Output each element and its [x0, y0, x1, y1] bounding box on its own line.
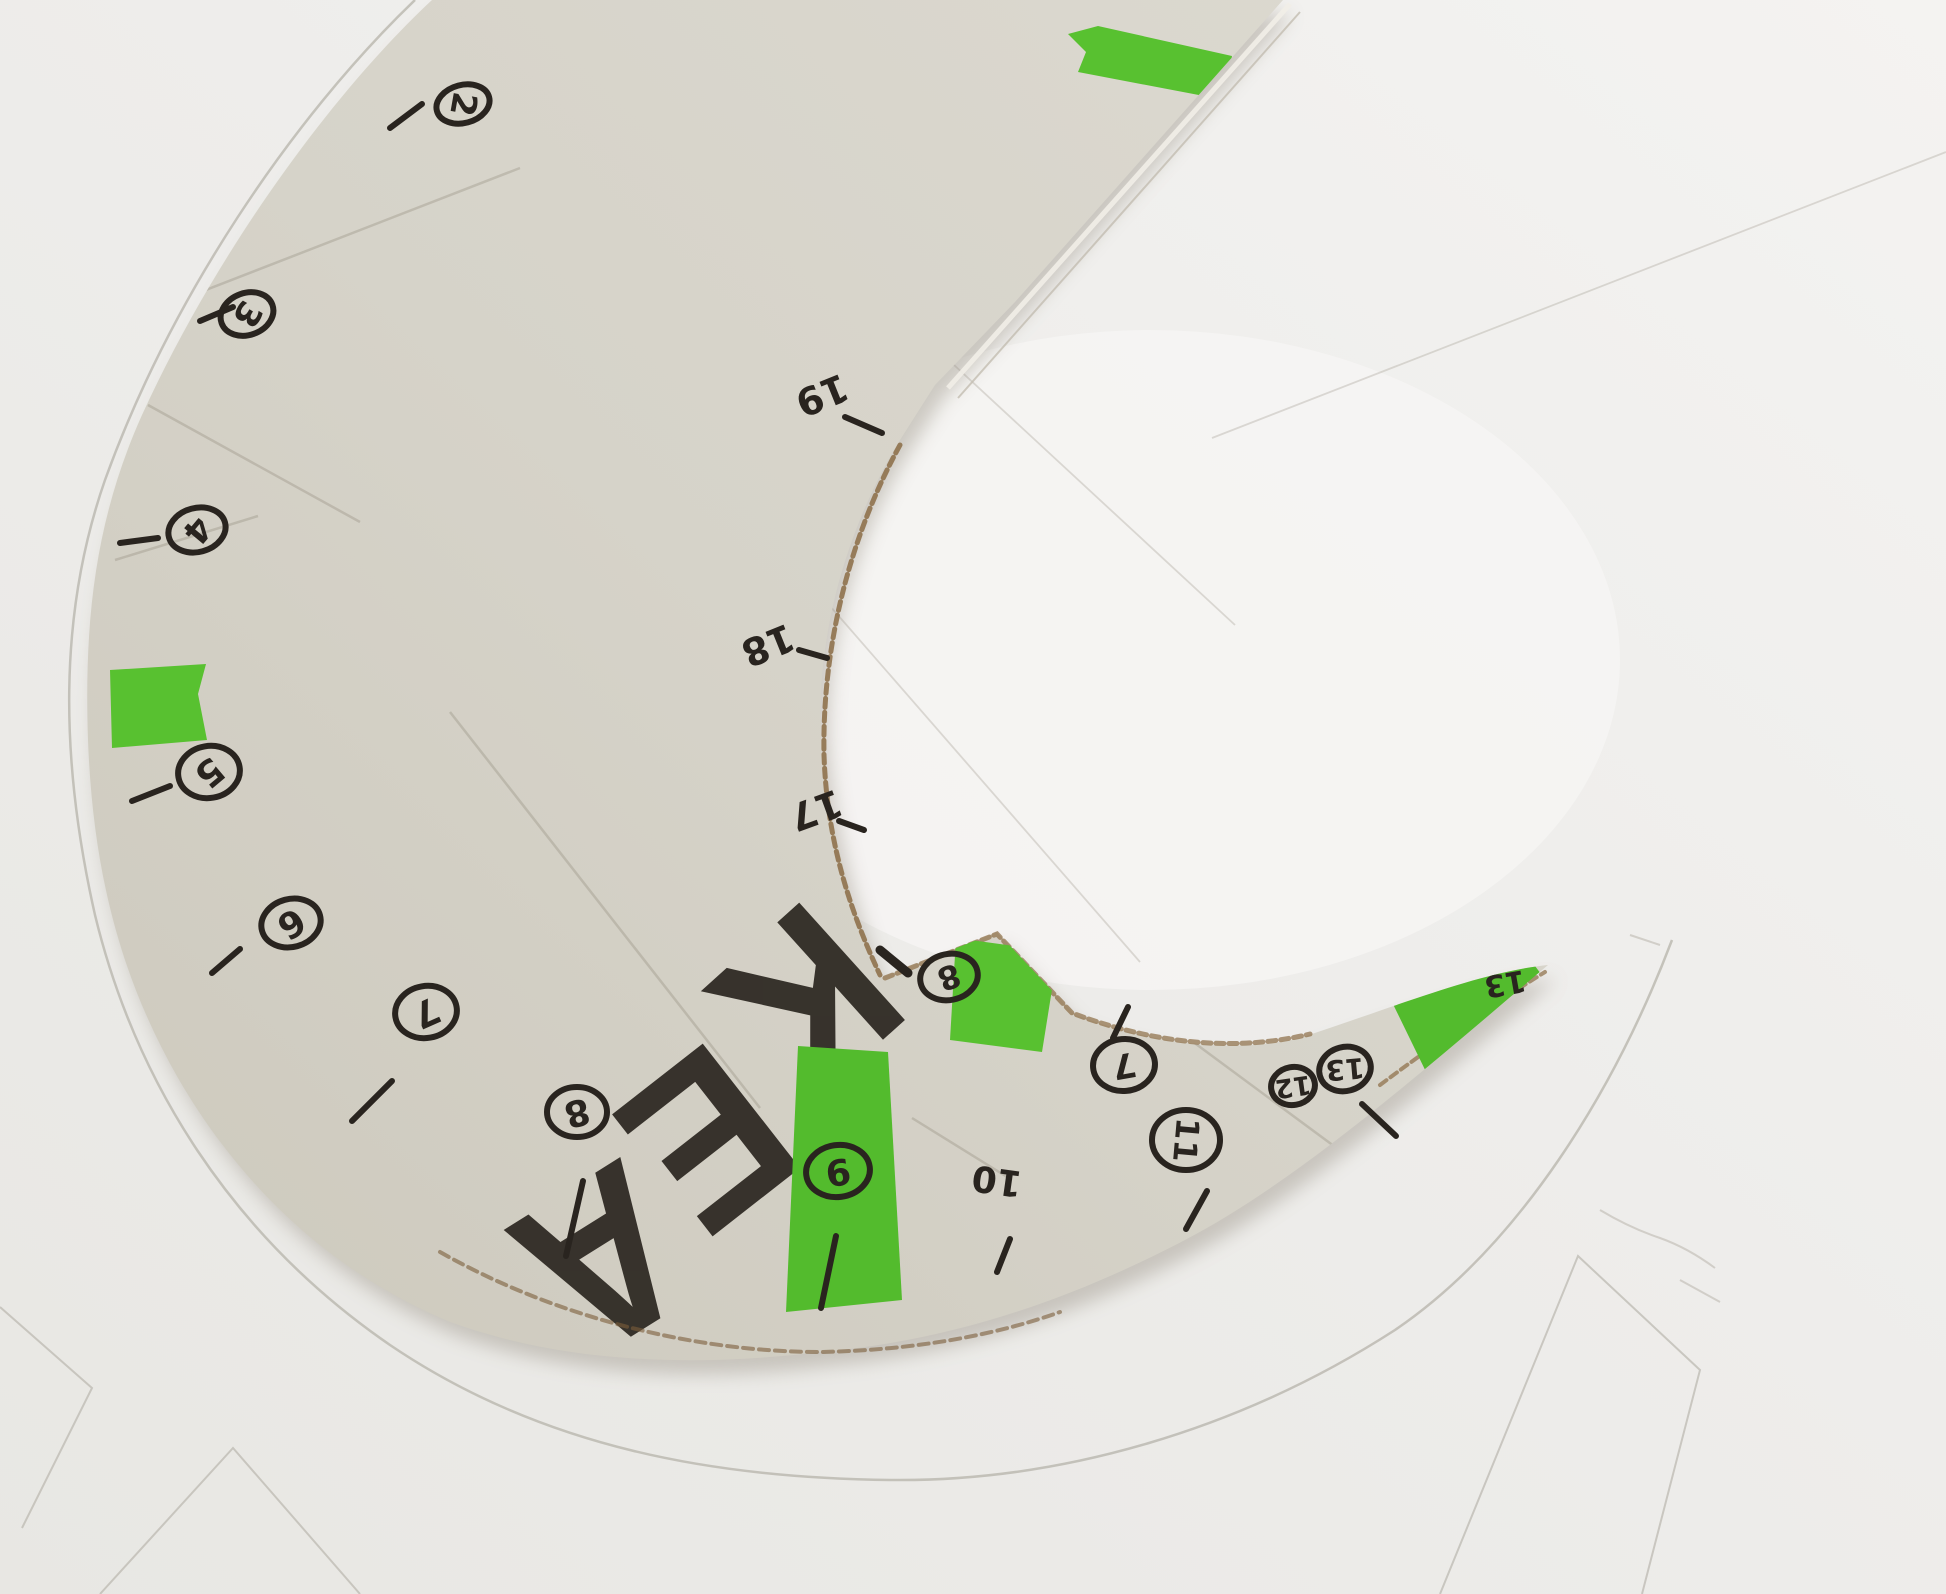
marker-number: 12: [1273, 1069, 1313, 1104]
marker-number: 11: [1165, 1116, 1207, 1164]
scene-canvas: IKEA 23456789101187121313191817: [0, 0, 1946, 1594]
marker-number: 13: [1481, 962, 1528, 1004]
photo-cardboard-pattern-template: IKEA 23456789101187121313191817: [0, 0, 1946, 1594]
tape-left: [110, 664, 207, 748]
marker-number: 13: [1324, 1051, 1366, 1087]
marker-13-15: 13: [1481, 962, 1528, 1004]
marker-number: 10: [969, 1156, 1024, 1204]
